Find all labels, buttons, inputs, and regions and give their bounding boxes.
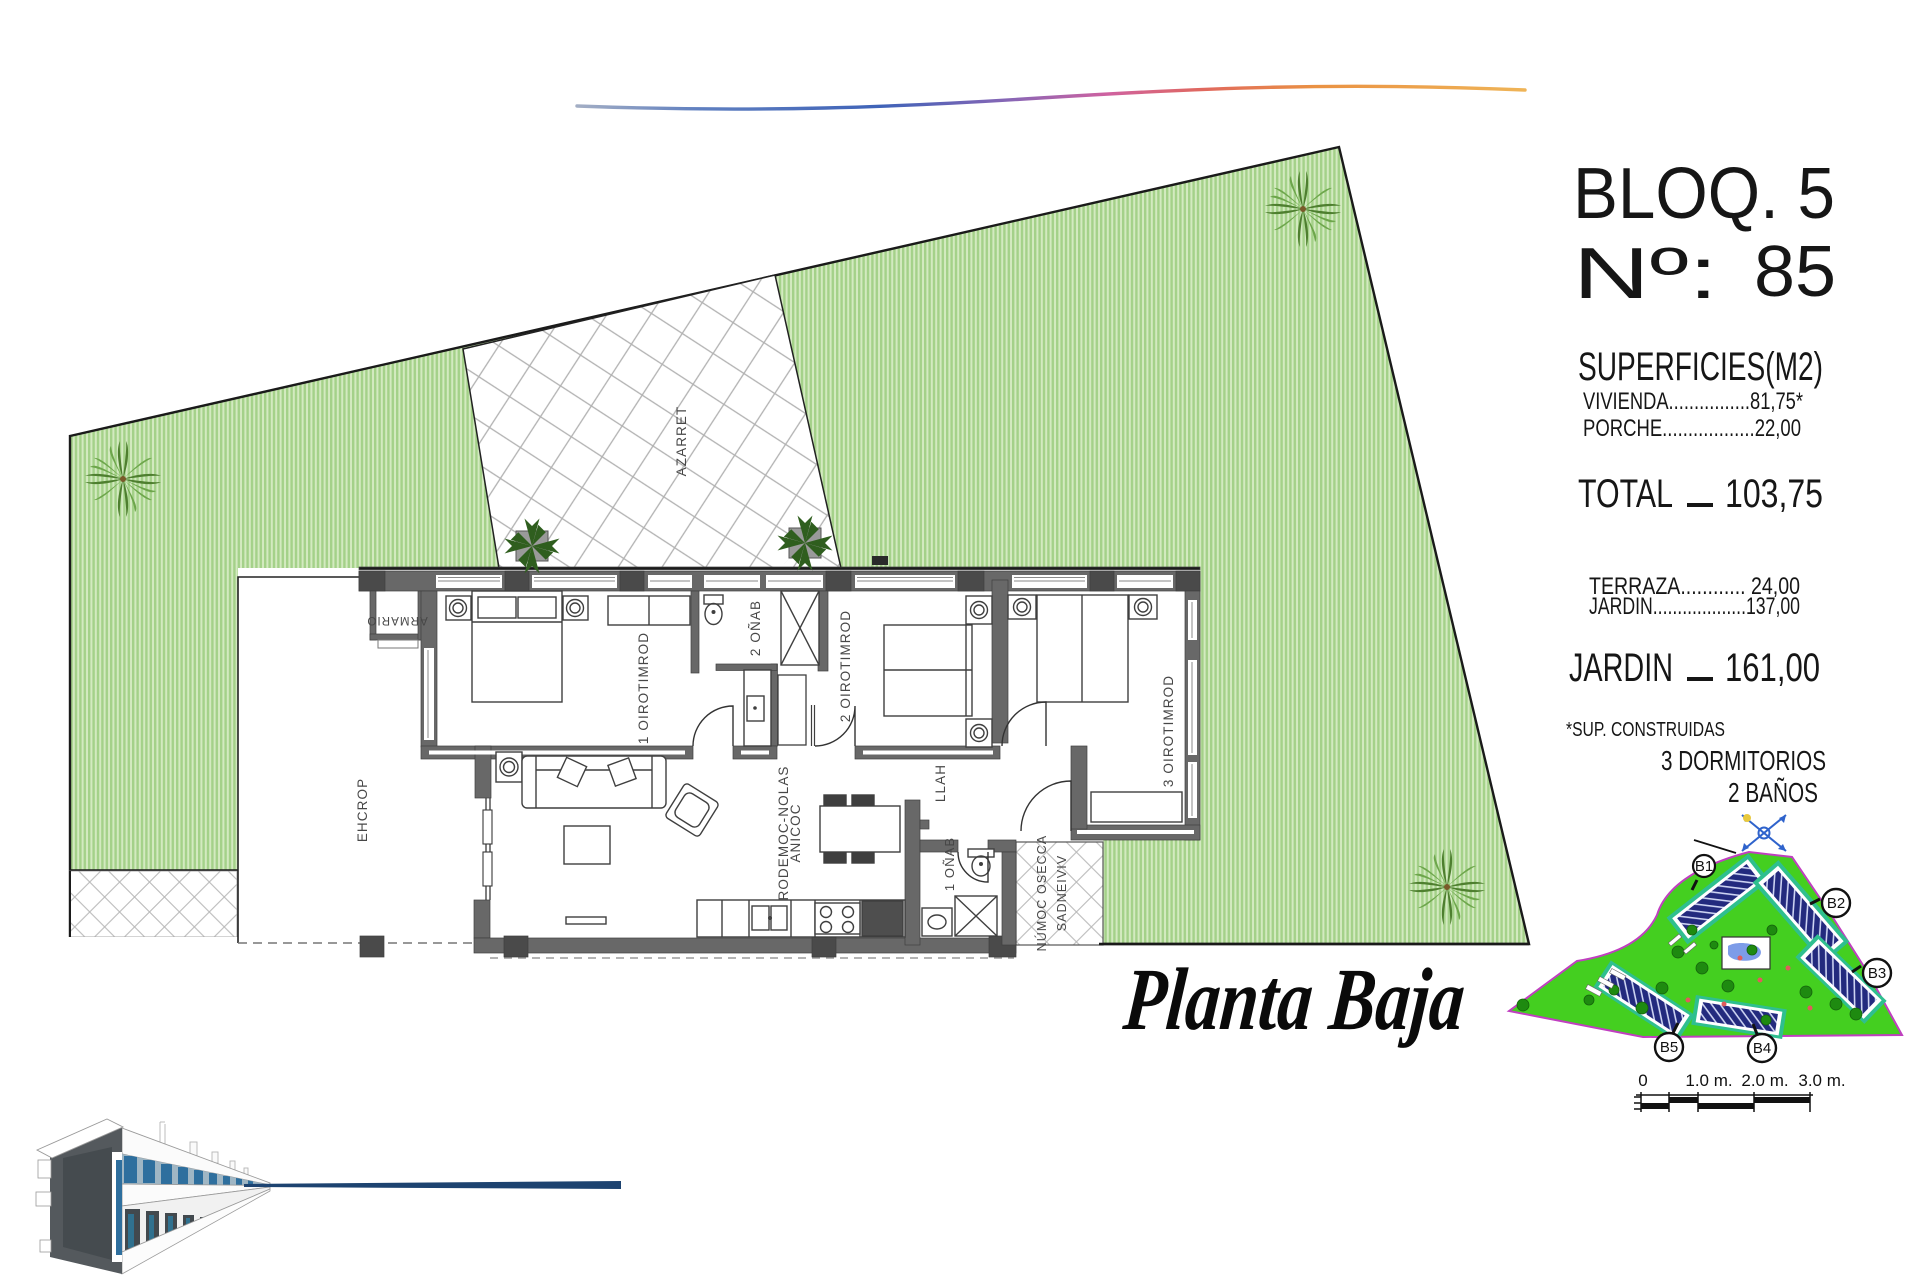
svg-text:SADNEIVIV: SADNEIVIV [1055, 855, 1069, 932]
svg-text:2 BAÑOS: 2 BAÑOS [1728, 777, 1818, 808]
svg-text:JARDIN: JARDIN [1569, 646, 1673, 690]
svg-text:3 OIROTIMROD: 3 OIROTIMROD [1161, 675, 1176, 787]
svg-text:EHCROP: EHCROP [355, 778, 370, 842]
svg-text:ARMARIO: ARMARIO [366, 614, 427, 626]
svg-text:B3: B3 [1868, 965, 1886, 982]
svg-text:1 OÑAB: 1 OÑAB [942, 837, 957, 891]
svg-text:*SUP. CONSTRUIDAS: *SUP. CONSTRUIDAS [1566, 719, 1725, 741]
svg-text:B1: B1 [1695, 858, 1713, 875]
svg-text:VIVIENDA................81,75*: VIVIENDA................81,75* [1583, 388, 1803, 415]
svg-text:0: 0 [1638, 1071, 1647, 1090]
svg-text:ANICOC: ANICOC [788, 803, 803, 862]
svg-text:B2: B2 [1827, 895, 1845, 912]
svg-text:2 OIROTIMROD: 2 OIROTIMROD [838, 610, 853, 722]
svg-text:85: 85 [1754, 232, 1836, 312]
svg-text:PORCHE..................22,00: PORCHE..................22,00 [1583, 415, 1801, 442]
svg-text:JARDIN...................137,0: JARDIN...................137,00 [1589, 593, 1800, 620]
svg-text:AZARRET: AZARRET [674, 406, 689, 477]
svg-text:1 OIROTIMROD: 1 OIROTIMROD [636, 632, 651, 744]
svg-text:103,75: 103,75 [1725, 472, 1823, 516]
svg-text:3 DORMITORIOS: 3 DORMITORIOS [1661, 745, 1826, 776]
svg-text:1.0 m.: 1.0 m. [1685, 1071, 1732, 1090]
svg-text:3.0 m.: 3.0 m. [1798, 1071, 1845, 1090]
svg-text:TOTAL: TOTAL [1578, 472, 1673, 516]
svg-text:LLAH: LLAH [933, 764, 948, 802]
svg-text:Nº:: Nº: [1573, 234, 1718, 314]
svg-text:161,00: 161,00 [1725, 646, 1820, 690]
svg-text:Planta Baja: Planta Baja [1119, 950, 1468, 1049]
svg-text:2 OÑAB: 2 OÑAB [748, 600, 763, 656]
svg-text:2.0 m.: 2.0 m. [1741, 1071, 1788, 1090]
svg-text:B5: B5 [1660, 1039, 1678, 1056]
svg-text:BLOQ. 5: BLOQ. 5 [1573, 154, 1835, 234]
svg-text:SUPERFICIES(M2): SUPERFICIES(M2) [1578, 345, 1823, 389]
svg-text:NÚMOC OSECCA: NÚMOC OSECCA [1034, 835, 1049, 952]
svg-text:B4: B4 [1753, 1040, 1771, 1057]
